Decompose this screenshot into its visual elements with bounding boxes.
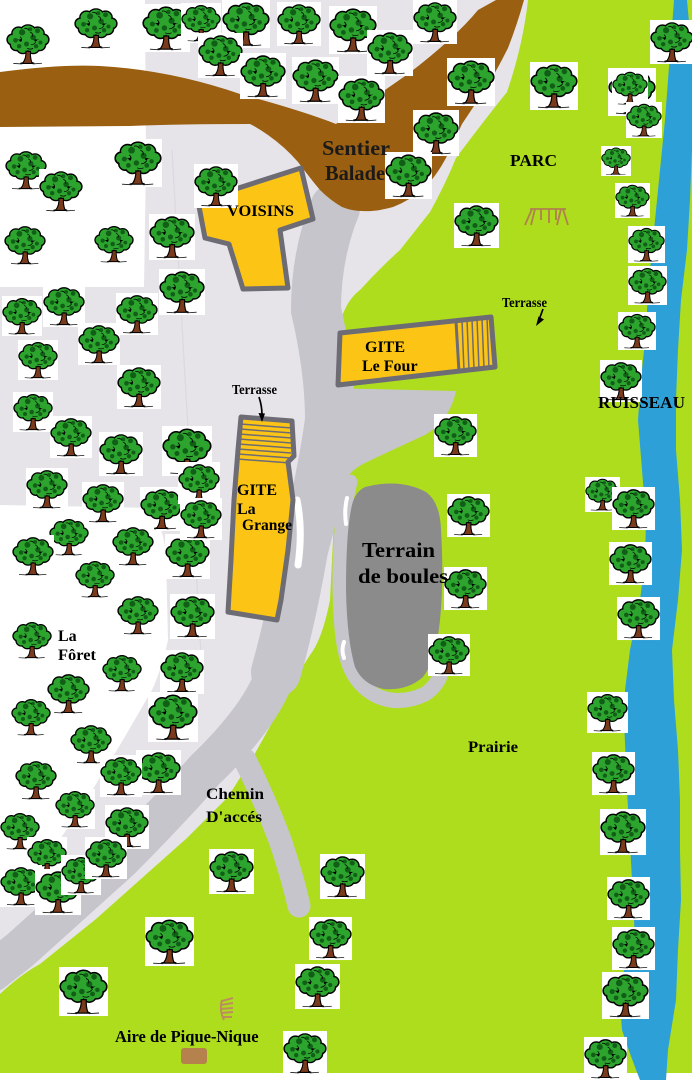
svg-text:La: La bbox=[58, 628, 77, 645]
svg-text:Sentier: Sentier bbox=[322, 136, 390, 160]
svg-text:Aire de Pique-Nique: Aire de Pique-Nique bbox=[115, 1027, 259, 1046]
svg-text:GITE: GITE bbox=[237, 482, 277, 499]
svg-text:Prairie: Prairie bbox=[468, 739, 518, 756]
svg-text:Terrasse: Terrasse bbox=[502, 295, 547, 310]
svg-text:RUISSEAU: RUISSEAU bbox=[598, 393, 685, 412]
svg-text:VOISINS: VOISINS bbox=[227, 203, 294, 220]
svg-text:Terrain: Terrain bbox=[362, 538, 435, 562]
svg-text:GITE: GITE bbox=[365, 339, 405, 356]
svg-text:de boules: de boules bbox=[358, 564, 448, 588]
svg-text:Terrasse: Terrasse bbox=[232, 382, 277, 397]
svg-text:Fôret: Fôret bbox=[58, 647, 97, 664]
svg-text:Le Four: Le Four bbox=[362, 358, 418, 375]
svg-text:La: La bbox=[237, 501, 256, 518]
svg-text:PARC: PARC bbox=[510, 151, 557, 170]
svg-text:Grange: Grange bbox=[242, 517, 292, 534]
svg-text:Balade: Balade bbox=[325, 161, 385, 185]
svg-text:Chemin: Chemin bbox=[206, 786, 264, 803]
svg-text:D'accés: D'accés bbox=[206, 809, 262, 826]
